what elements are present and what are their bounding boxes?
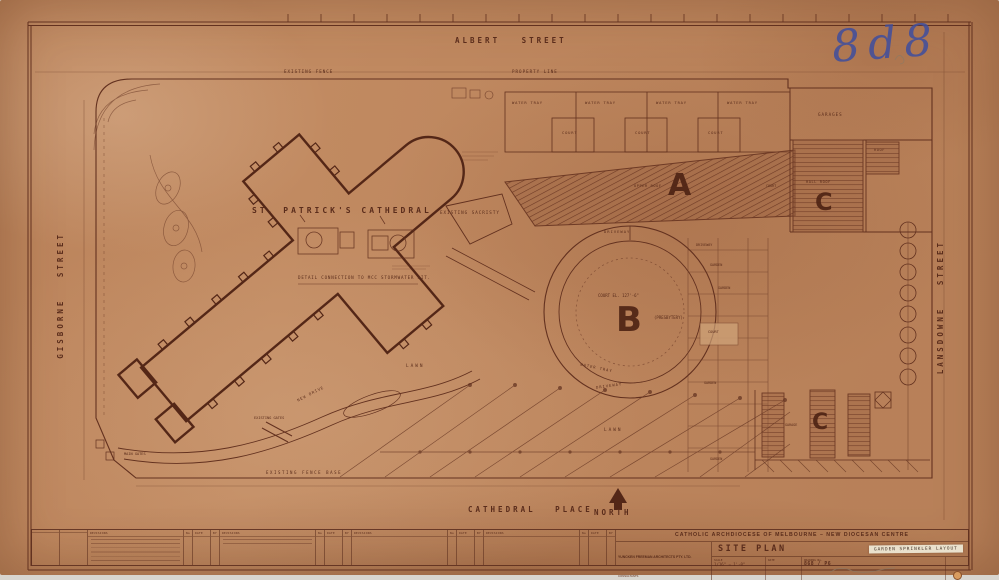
scale-cell: SCALE 1/16" = 1'-0" (712, 557, 766, 580)
revision-desc-1: REVISIONS (88, 530, 184, 565)
architects-name: YUNCKEN FREEMAN ARCHITECTS PTY. LTD. (618, 555, 691, 559)
street-label-gisborne: GISBORNE STREET (56, 232, 65, 359)
lawn-label-2: LAWN (604, 428, 623, 433)
sprinkler-lines (340, 383, 790, 477)
garage-label: GARAGE (785, 424, 797, 428)
garden-label-3: GARDEN (704, 382, 716, 386)
north-arrow-icon (609, 488, 627, 510)
street-label-cathedral-place: CATHEDRAL PLACE (468, 506, 593, 515)
garages-label: GARAGES (818, 113, 843, 118)
revisions-header: REVISIONS (88, 530, 183, 537)
handwritten-sheet-number: 8d8 (830, 14, 941, 72)
client-name: CATHOLIC ARCHDIOCESE OF MELBOURNE – NEW … (616, 530, 968, 542)
street-label-lansdowne: LANSDOWNE STREET (936, 240, 945, 374)
hall-roof-label: HALL ROOF (806, 180, 831, 184)
revision-entries (91, 539, 180, 561)
punch-hole (953, 571, 962, 580)
revision-date-2: DATE (325, 530, 343, 565)
consultants-label: CONSULTANTS (618, 574, 638, 578)
pencil-marks (830, 55, 904, 572)
building-c-top-letter: C (815, 188, 833, 216)
revision-no-4: No (580, 530, 589, 565)
court-terrace-label: COURT (708, 330, 719, 334)
court-label-3: COURT (708, 131, 723, 135)
court-elevation-label: COURT EL. 127'-6" (598, 294, 639, 299)
scanned-site-plan-sheet: 8d8 ALBERT STREET GISBORNE STREET LANSDO… (0, 0, 999, 580)
sacristy-label: EXISTING SACRISTY (440, 211, 500, 216)
drawing-number-cell: DRAWING No. 868 / P6 (802, 557, 946, 580)
sheet-title: SITE PLAN (712, 544, 869, 554)
garden-label-4: GARDEN (710, 458, 722, 462)
date-cell: DATE (766, 557, 802, 580)
revision-by-2: BY (343, 530, 352, 565)
court-label-1: COURT (562, 131, 577, 135)
water-tray-label-3: WATER TRAY (656, 101, 687, 105)
property-boundary (96, 79, 932, 478)
revision-date-1: DATE (193, 530, 211, 565)
driveway-right-label: DRIVEWAY (696, 244, 712, 248)
existing-fence-base-label: EXISTING FENCE BASE (266, 471, 342, 476)
water-tray-label-4: WATER TRAY (727, 101, 758, 105)
plan-linework (0, 0, 999, 580)
revision-date-4: DATE (589, 530, 607, 565)
architects-cell: YUNCKEN FREEMAN ARCHITECTS PTY. LTD. CON… (616, 542, 712, 580)
water-tray-label-1: WATER TRAY (512, 101, 543, 105)
presbytery-label: (PRESBYTERY) (654, 316, 683, 321)
stormwater-detail (298, 215, 430, 284)
revision-desc-4: REVISIONS (484, 530, 580, 565)
existing-gates-label: EXISTING GATES (254, 416, 284, 420)
revision-no-2: No (316, 530, 325, 565)
tree-circle-column (900, 222, 916, 470)
building-c-hall (790, 88, 932, 232)
court-label-2: COURT (635, 131, 650, 135)
revision-no-1: No (184, 530, 193, 565)
detail-caption: DETAIL CONNECTION TO MCC STORMWATER PIT. (298, 276, 431, 281)
revision-by-4: BY (607, 530, 616, 565)
upper-roof-label: UPPER ROOF (634, 184, 662, 188)
title-block-spare-col-1 (32, 530, 60, 565)
garden-label-2: GARDEN (718, 287, 730, 291)
lawn-label-1: LAWN (406, 364, 425, 369)
roof-label: ROOF (874, 148, 885, 152)
street-label-albert: ALBERT STREET (455, 37, 567, 46)
revision-desc-3: REVISIONS (352, 530, 448, 565)
building-a-letter: A (668, 168, 691, 203)
court-west-of-c-label: COURT (766, 185, 776, 189)
revision-desc-2: REVISIONS (220, 530, 316, 565)
building-c-bottom-letter: C (812, 410, 828, 435)
revision-by-3: BY (475, 530, 484, 565)
revision-by-1: BY (211, 530, 220, 565)
revision-date-3: DATE (457, 530, 475, 565)
title-block-main: CATHOLIC ARCHDIOCESE OF MELBOURNE – NEW … (616, 530, 968, 565)
garden-label-1: GARDEN (710, 264, 722, 268)
drawing-number: 868 / P6 (804, 562, 943, 567)
cathedral-label: ST. PATRICK'S CATHEDRAL (252, 206, 432, 215)
punch-hole-cell (946, 557, 968, 580)
existing-fence-label: EXISTING FENCE (284, 70, 333, 75)
drawing-paper: 8d8 ALBERT STREET GISBORNE STREET LANSDO… (0, 0, 999, 575)
title-block-spare-col-2 (60, 530, 88, 565)
revision-no-3: No (448, 530, 457, 565)
driveway-top-label: DRIVEWAY (604, 230, 630, 234)
garden-paths (94, 84, 202, 283)
north-label: NORTH (594, 509, 632, 518)
water-tray-label-2: WATER TRAY (585, 101, 616, 105)
building-b-letter: B (616, 300, 642, 340)
title-block: REVISIONS No DATE BY REVISIONS No DATE B… (31, 529, 969, 566)
sheet-border (28, 14, 972, 570)
property-line-label: PROPERTY LINE (512, 70, 558, 75)
sheet-subtitle-tape: GARDEN SPRINKLER LAYOUT (869, 545, 963, 554)
main-gates-label: MAIN GATES (124, 452, 146, 456)
